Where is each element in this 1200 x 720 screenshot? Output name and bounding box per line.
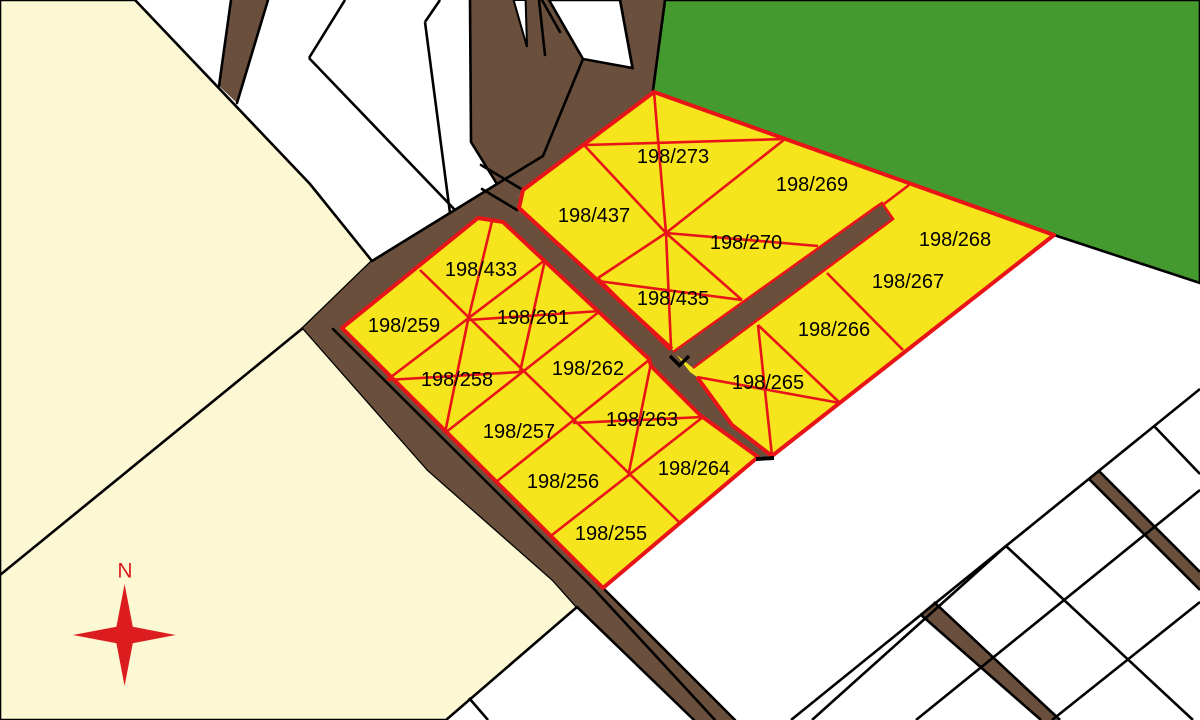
svg-text:198/261: 198/261: [497, 307, 569, 329]
svg-text:198/257: 198/257: [483, 421, 555, 443]
svg-text:198/259: 198/259: [368, 315, 440, 337]
svg-text:198/262: 198/262: [552, 358, 624, 380]
svg-text:198/256: 198/256: [527, 471, 599, 493]
svg-text:198/268: 198/268: [919, 229, 991, 251]
svg-text:198/265: 198/265: [732, 372, 804, 394]
svg-text:198/437: 198/437: [558, 205, 630, 227]
svg-text:198/267: 198/267: [872, 271, 944, 293]
svg-text:198/270: 198/270: [710, 232, 782, 254]
svg-text:198/258: 198/258: [421, 369, 493, 391]
svg-text:198/273: 198/273: [637, 146, 709, 168]
svg-text:198/255: 198/255: [575, 523, 647, 545]
svg-text:198/264: 198/264: [658, 458, 730, 480]
svg-text:N: N: [117, 560, 132, 583]
svg-text:198/433: 198/433: [445, 259, 517, 281]
svg-text:198/263: 198/263: [606, 409, 678, 431]
svg-text:198/435: 198/435: [637, 288, 709, 310]
svg-text:198/269: 198/269: [776, 174, 848, 196]
svg-text:198/266: 198/266: [798, 319, 870, 341]
